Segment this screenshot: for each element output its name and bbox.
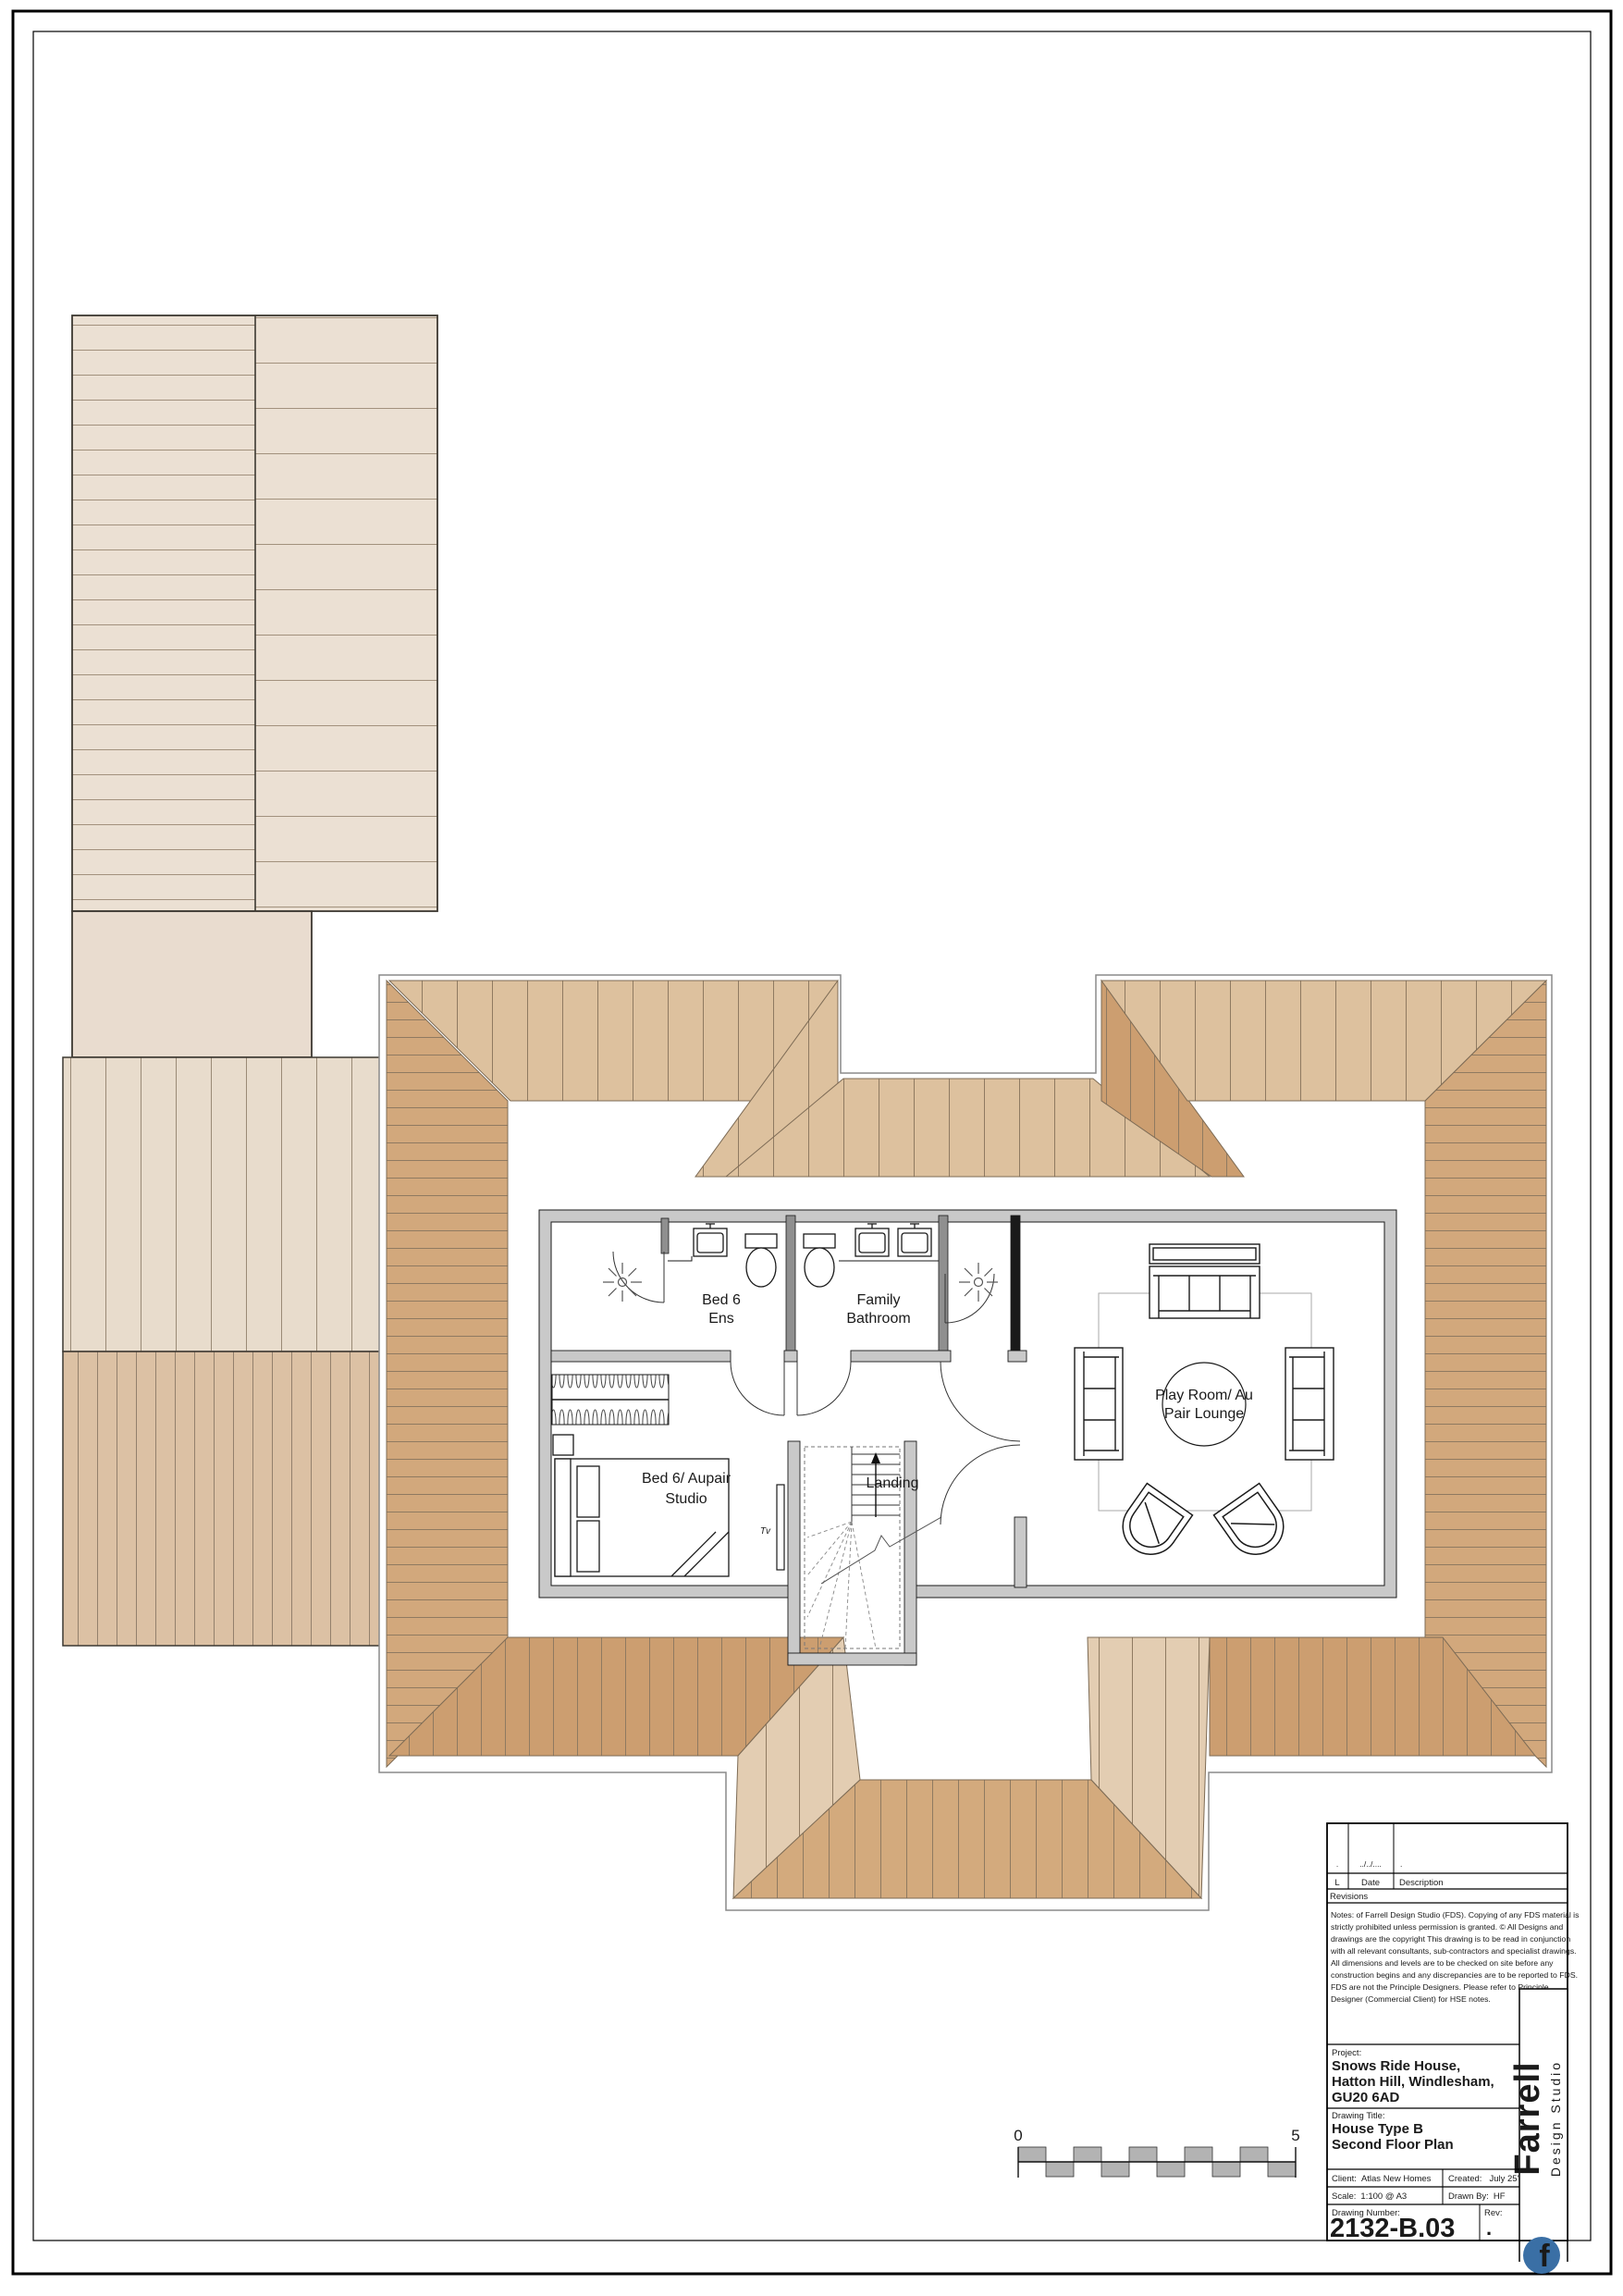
project-line-3: GU20 6AD (1332, 2090, 1400, 2105)
notes-line: construction begins and any discrepancie… (1331, 1970, 1578, 1980)
rev-col-date: Date (1361, 1878, 1380, 1888)
notes-line: Designer (Commercial Client) for HSE not… (1331, 1994, 1491, 2004)
notes-line: Notes: of Farrell Design Studio (FDS). C… (1331, 1910, 1580, 1920)
project-line-2: Hatton Hill, Windlesham, (1332, 2074, 1494, 2090)
roof-block-plain (72, 911, 312, 1057)
wall-void-right (1011, 1216, 1020, 1354)
bathroom-sink-1 (855, 1224, 889, 1256)
label-bed6-aupair-1: Bed 6/ Aupair (642, 1471, 732, 1487)
rev-value: . (1486, 2216, 1492, 2240)
label-landing: Landing (867, 1475, 919, 1491)
notes-line: drawings are the copyright This drawing … (1331, 1934, 1570, 1944)
roof-west-band (387, 981, 508, 1767)
label-family-bathroom-1: Family (856, 1292, 900, 1308)
drawnby-row: Drawn By:HF (1448, 2191, 1506, 2202)
notes-line: FDS are not the Principle Designers. Ple… (1331, 1982, 1549, 1992)
floor-plan-drawing: Tv Bed (0, 0, 1623, 2296)
drawing-title-2: Second Floor Plan (1332, 2137, 1454, 2153)
drawing-title-1: House Type B (1332, 2121, 1423, 2137)
label-family-bathroom-2: Bathroom (846, 1311, 910, 1327)
label-bed6-ens-2: Ens (708, 1311, 734, 1327)
bathroom-sink-2 (898, 1224, 931, 1256)
roof-strip-dark (63, 1352, 383, 1646)
rev-empty-l: . (1336, 1859, 1338, 1869)
project-label: Project: (1332, 2048, 1361, 2058)
scale-start: 0 (1014, 2127, 1022, 2144)
drawing-title-label: Drawing Title: (1332, 2111, 1385, 2121)
rev-empty-date: ../../.... (1359, 1859, 1382, 1869)
tv-panel (777, 1485, 784, 1570)
client-row: Client:Atlas New Homes (1332, 2174, 1432, 2184)
sofa-top (1150, 1266, 1260, 1318)
drawing-sheet: Tv Bed (0, 0, 1623, 2296)
sofa-left (1075, 1348, 1123, 1460)
title-block: . ../../.... . L Date Description Revisi… (1327, 1823, 1580, 2274)
project-line-1: Snows Ride House, (1332, 2058, 1460, 2074)
revisions-label: Revisions (1330, 1892, 1368, 1902)
label-playroom-2: Pair Lounge (1164, 1406, 1244, 1422)
roof-strip-light (63, 1057, 383, 1352)
scale-row: Scale:1:100 @ A3 (1332, 2191, 1407, 2202)
wall-bathroom-right (939, 1216, 948, 1354)
notes-line: strictly prohibited unless permission is… (1331, 1922, 1563, 1932)
scale-end: 5 (1291, 2127, 1299, 2144)
brand-logo-letter: f (1539, 2239, 1550, 2274)
label-bed6-aupair-2: Studio (665, 1491, 707, 1507)
tv-unit (1150, 1244, 1260, 1264)
label-playroom-1: Play Room/ Au (1155, 1388, 1253, 1403)
brand-name: Farrell (1508, 2061, 1547, 2175)
sofa-right (1285, 1348, 1334, 1460)
brand-suffix: Design Studio (1548, 2060, 1563, 2177)
wall-ens-bathroom (786, 1216, 795, 1354)
rev-col-desc: Description (1399, 1878, 1444, 1888)
drawing-number-value: 2132-B.03 (1330, 2214, 1455, 2243)
label-bed6-ens-1: Bed 6 (702, 1292, 741, 1308)
rev-col-l: L (1334, 1878, 1339, 1888)
notes-line: with all relevant consultants, sub-contr… (1330, 1946, 1577, 1956)
tv-label: Tv (760, 1526, 771, 1537)
wall-playroom-left (1014, 1517, 1027, 1587)
bathroom-toilet (804, 1234, 835, 1287)
ens-toilet (745, 1234, 777, 1287)
wardrobe-rail (552, 1375, 669, 1425)
notes-line: All dimensions and levels are to be chec… (1331, 1958, 1554, 1968)
roof-strip-blocks-left (63, 1057, 383, 1646)
ens-sink (694, 1224, 727, 1256)
rev-empty-desc: . (1400, 1859, 1402, 1869)
wall-ens-closet (661, 1218, 669, 1253)
